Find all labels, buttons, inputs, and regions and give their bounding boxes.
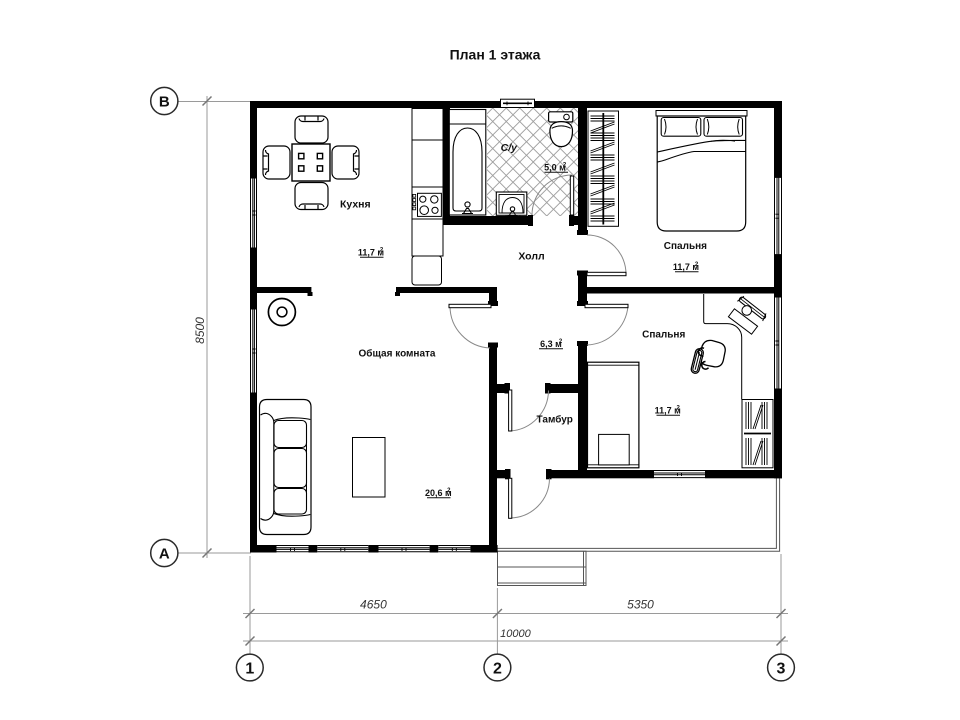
svg-text:10000: 10000 [500,628,531,640]
svg-text:С/у: С/у [501,142,519,154]
svg-text:Спальня: Спальня [642,330,685,341]
svg-text:2: 2 [493,660,502,677]
svg-text:5350: 5350 [627,597,654,611]
svg-text:Тамбур: Тамбур [537,414,573,426]
svg-text:8500: 8500 [193,317,207,344]
svg-text:План 1 этажа: План 1 этажа [450,47,541,63]
svg-text:Общая комната: Общая комната [359,347,436,359]
svg-text:А: А [159,545,170,562]
svg-text:1: 1 [245,660,254,677]
svg-text:Холл: Холл [518,251,544,263]
svg-text:Кухня: Кухня [340,199,371,211]
svg-text:4650: 4650 [360,597,387,611]
svg-text:3: 3 [777,660,786,677]
svg-text:В: В [159,93,170,110]
svg-text:Спальня: Спальня [664,241,707,252]
